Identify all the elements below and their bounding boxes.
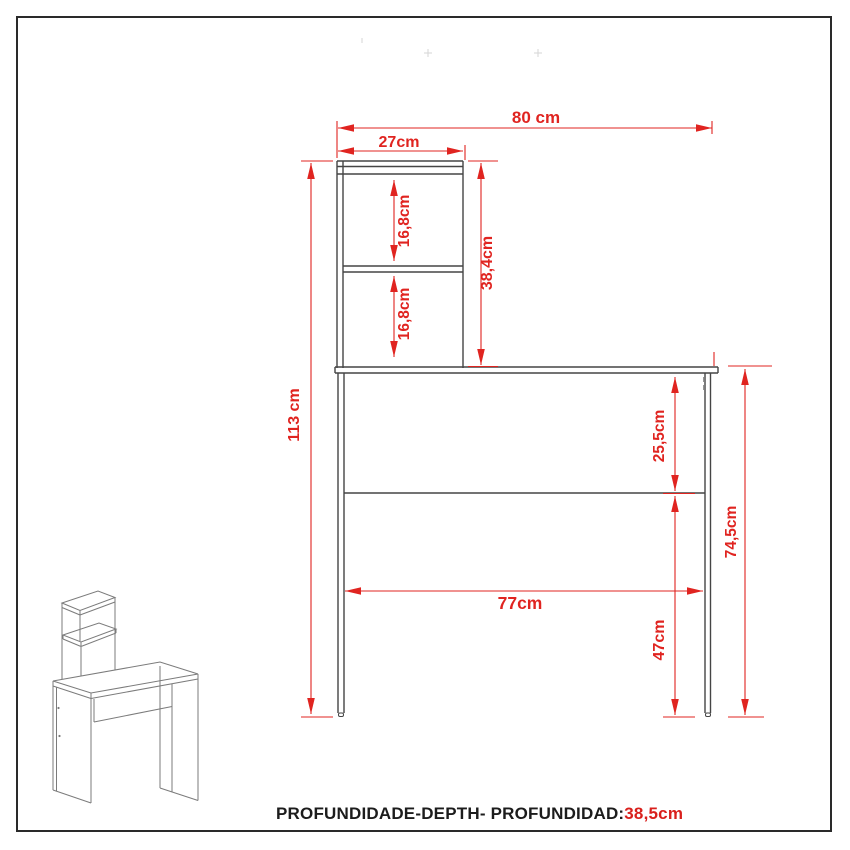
- label-74-5cm: 74,5cm: [723, 506, 740, 559]
- arrow-up-icon: [307, 163, 315, 179]
- arrow-down-icon: [390, 341, 398, 357]
- label-27cm: 27cm: [379, 134, 420, 151]
- arrow-left-icon: [345, 587, 361, 595]
- depth-caption-label: PROFUNDIDADE-DEPTH- PROFUNDIDAD:: [276, 804, 624, 823]
- arrow-up-icon: [477, 163, 485, 179]
- arrow-down-icon: [741, 699, 749, 715]
- label-38-4cm: 38,4cm: [479, 236, 496, 290]
- label-47cm: 47cm: [651, 620, 668, 661]
- arrow-down-icon: [671, 699, 679, 715]
- desk-dimension-drawing: 80 cm 27cm 113 cm 38,4cm 16,8cm 16,8cm 2…: [0, 0, 850, 850]
- dimension-113cm: [301, 161, 333, 717]
- dimensions-layer: [301, 121, 772, 717]
- isometric-thumbnail: [53, 591, 198, 803]
- label-25-5cm: 25,5cm: [651, 410, 668, 463]
- arrow-down-icon: [477, 349, 485, 365]
- label-113cm: 113 cm: [286, 388, 303, 441]
- label-16-8cm-lower: 16,8cm: [396, 288, 413, 341]
- arrow-down-icon: [671, 475, 679, 491]
- label-80cm: 80 cm: [512, 108, 560, 127]
- arrow-up-icon: [671, 496, 679, 512]
- arrow-down-icon: [307, 698, 315, 714]
- arrow-right-icon: [696, 124, 712, 132]
- arrow-left-icon: [338, 147, 354, 155]
- arrow-up-icon: [741, 369, 749, 385]
- arrow-up-icon: [671, 377, 679, 393]
- arrow-right-icon: [687, 587, 703, 595]
- dimension-47cm: [663, 496, 695, 717]
- registration-marks: [362, 38, 542, 57]
- depth-caption: PROFUNDIDADE-DEPTH- PROFUNDIDAD:38,5cm: [276, 804, 683, 824]
- arrow-right-icon: [447, 147, 463, 155]
- label-16-8cm-upper: 16,8cm: [396, 195, 413, 248]
- depth-caption-value: 38,5cm: [624, 804, 683, 823]
- arrow-left-icon: [338, 124, 354, 132]
- label-77cm: 77cm: [498, 593, 543, 613]
- arrow-up-icon: [390, 180, 398, 196]
- left-leg-outline: [338, 373, 344, 717]
- right-leg-outline: [705, 373, 711, 717]
- technical-drawing-page: 80 cm 27cm 113 cm 38,4cm 16,8cm 16,8cm 2…: [0, 0, 850, 850]
- desktop-outline: [335, 367, 718, 373]
